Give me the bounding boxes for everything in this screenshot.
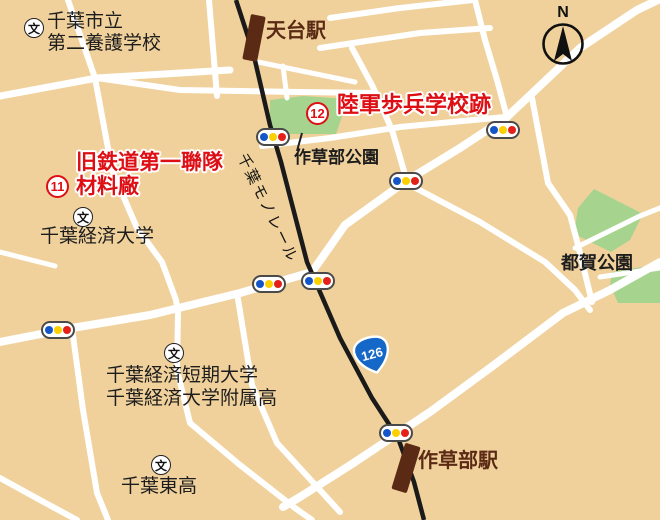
traffic-signal-icon (256, 128, 290, 146)
signal-yellow-dot (269, 133, 277, 141)
signal-red-dot (323, 277, 331, 285)
yogo-school-label-line2: 第二養護学校 (47, 33, 161, 55)
signal-yellow-dot (54, 326, 62, 334)
tendai-station-label: 天台駅 (266, 20, 326, 43)
signal-red-dot (63, 326, 71, 334)
signal-blue-dot (383, 429, 391, 437)
traffic-signal-icon (301, 272, 335, 290)
traffic-signal-icon (252, 275, 286, 293)
signal-blue-dot (393, 177, 401, 185)
site12-number-badge: 12 (306, 102, 329, 125)
site12-rikugun-label: 陸軍歩兵学校跡 (337, 92, 491, 117)
signal-yellow-dot (402, 177, 410, 185)
higashi-school-label: 千葉東高 (121, 476, 197, 498)
yogo-school-label: 千葉市立 第二養護学校 (47, 11, 161, 55)
traffic-signal-icon (389, 172, 423, 190)
site11-kyutetsudo-label: 旧鉄道第一聯隊 材料廠 (76, 151, 223, 199)
yogo-school-label-line1: 千葉市立 (47, 11, 161, 33)
signal-red-dot (411, 177, 419, 185)
compass-graphic: N (538, 0, 588, 70)
school-icon: 文 (151, 455, 171, 475)
site11-number-badge: 11 (46, 175, 69, 198)
signal-yellow-dot (265, 280, 273, 288)
traffic-signal-icon (41, 321, 75, 339)
school-icon: 文 (164, 343, 184, 363)
signal-blue-dot (256, 280, 264, 288)
signal-red-dot (278, 133, 286, 141)
signal-blue-dot (490, 126, 498, 134)
tendai-station-marker (242, 14, 266, 62)
sakusabe-park-label: 作草部公園 (294, 148, 379, 168)
signal-red-dot (401, 429, 409, 437)
north-compass-icon: N (538, 0, 588, 75)
signal-blue-dot (260, 133, 268, 141)
traffic-signal-icon (379, 424, 413, 442)
site11-label-line2: 材料廠 (76, 175, 223, 199)
city-map: 文 文 文 文 千葉市立 第二養護学校 天台駅 陸軍歩兵学校跡 12 作草部公園… (0, 0, 660, 520)
school-icon: 文 (73, 207, 93, 227)
signal-blue-dot (305, 277, 313, 285)
signal-yellow-dot (314, 277, 322, 285)
tsuga-park-label: 都賀公園 (561, 253, 633, 274)
keizai-tandai-label-line2: 千葉経済大学附属高 (106, 387, 277, 410)
keizai-tandai-label-line1: 千葉経済短期大学 (106, 364, 277, 387)
keizai-tandai-label: 千葉経済短期大学 千葉経済大学附属高 (106, 364, 277, 410)
traffic-signal-icon (486, 121, 520, 139)
signal-red-dot (508, 126, 516, 134)
signal-yellow-dot (499, 126, 507, 134)
sakusabe-station-label: 作草部駅 (418, 450, 498, 473)
keizai-univ-label: 千葉経済大学 (40, 226, 154, 248)
signal-yellow-dot (392, 429, 400, 437)
site11-label-line1: 旧鉄道第一聯隊 (76, 151, 223, 175)
school-icon: 文 (24, 18, 44, 38)
signal-blue-dot (45, 326, 53, 334)
compass-north-label: N (557, 4, 569, 21)
signal-red-dot (274, 280, 282, 288)
